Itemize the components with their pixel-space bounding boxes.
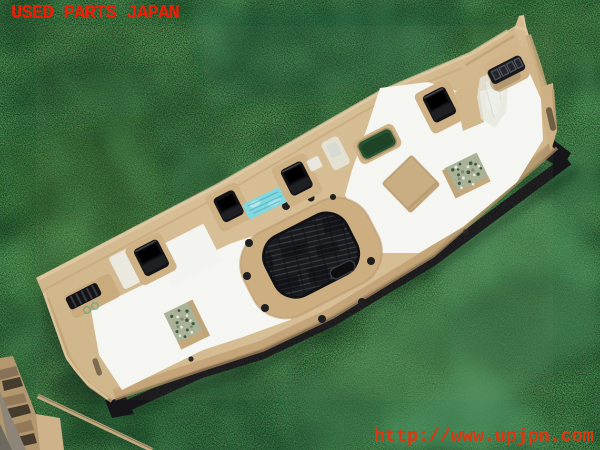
svg-text:http://www.upjpn.com: http://www.upjpn.com xyxy=(374,426,594,447)
svg-text:USED PARTS JAPAN: USED PARTS JAPAN xyxy=(11,2,180,24)
